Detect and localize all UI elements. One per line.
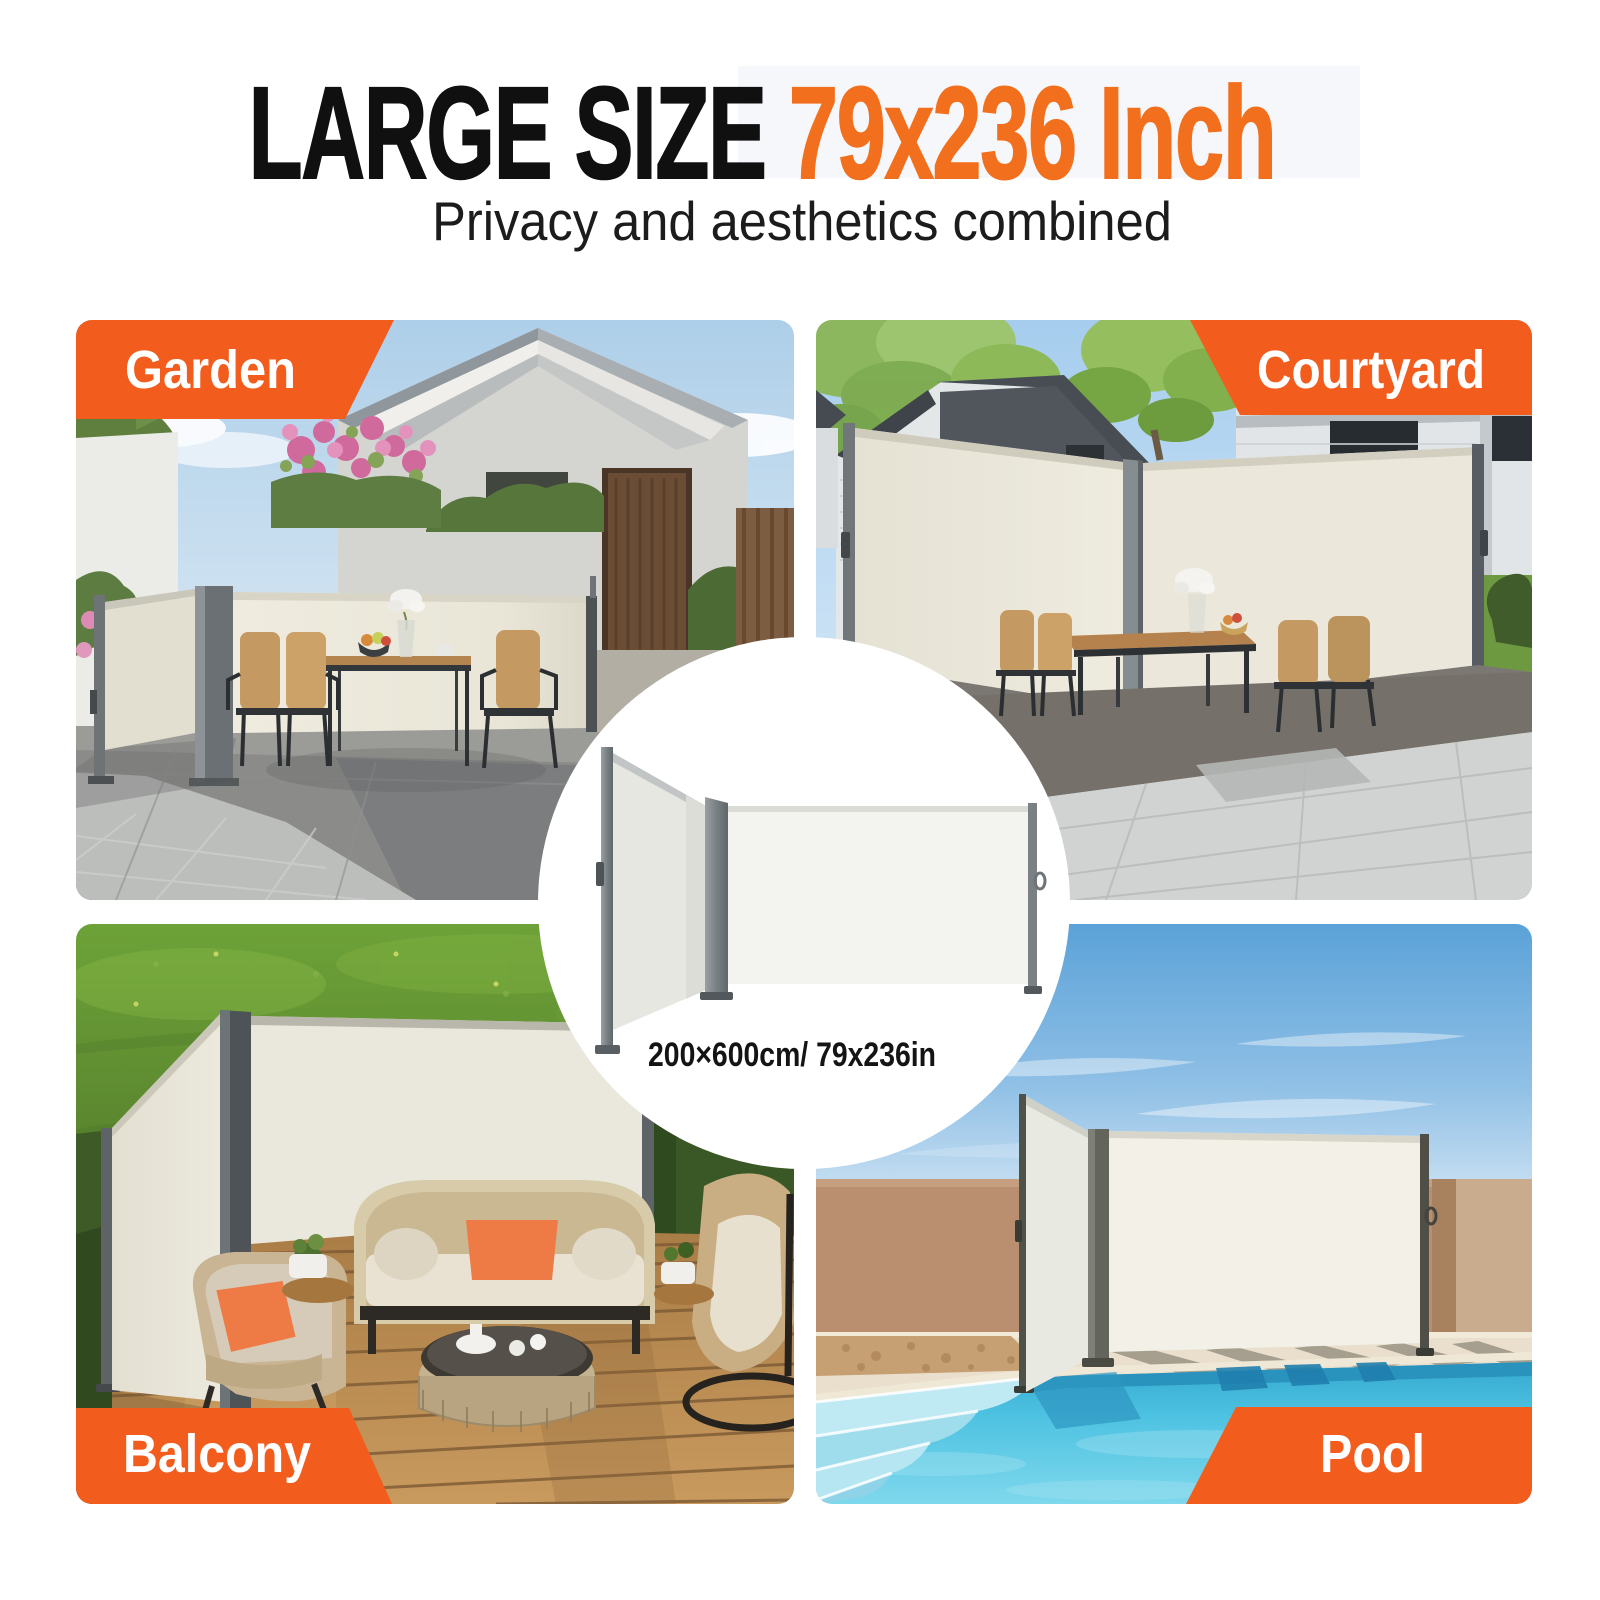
svg-text:Pool: Pool — [1320, 1424, 1425, 1484]
svg-text:Balcony: Balcony — [123, 1424, 311, 1484]
svg-text:Courtyard: Courtyard — [1257, 340, 1485, 400]
svg-text:Garden: Garden — [125, 340, 296, 400]
svg-text:200×600cm/ 79x236in: 200×600cm/ 79x236in — [648, 1036, 936, 1074]
